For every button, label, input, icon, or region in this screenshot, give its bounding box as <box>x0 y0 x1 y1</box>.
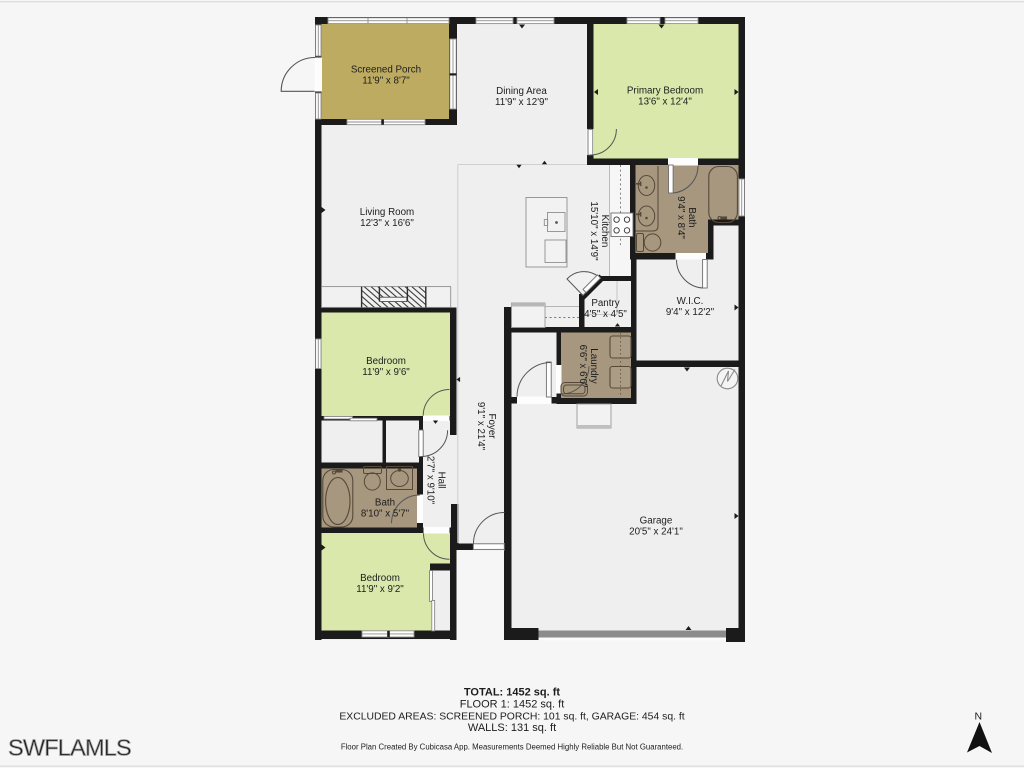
svg-text:Bath: Bath <box>686 207 697 227</box>
svg-text:9'4" x 8'4": 9'4" x 8'4" <box>675 196 686 239</box>
svg-text:8'10" x 5'7": 8'10" x 5'7" <box>361 509 410 520</box>
svg-text:TOTAL: 1452 sq. ft: TOTAL: 1452 sq. ft <box>464 687 561 699</box>
svg-text:W.I.C.: W.I.C. <box>677 296 704 307</box>
svg-text:Hall: Hall <box>436 472 447 489</box>
svg-text:Garage: Garage <box>640 516 673 527</box>
svg-text:Screened Porch: Screened Porch <box>351 65 421 76</box>
svg-text:Living Room: Living Room <box>360 207 414 218</box>
svg-text:20'5" x 24'1": 20'5" x 24'1" <box>629 527 683 538</box>
svg-text:9'1" x 21'4": 9'1" x 21'4" <box>475 402 486 451</box>
svg-text:Pantry: Pantry <box>591 298 619 309</box>
svg-text:11'9" x 9'2": 11'9" x 9'2" <box>356 584 404 595</box>
svg-text:Bedroom: Bedroom <box>366 356 406 367</box>
svg-text:12'3" x 16'6": 12'3" x 16'6" <box>360 218 414 229</box>
svg-text:Bath: Bath <box>375 498 395 509</box>
svg-text:Bedroom: Bedroom <box>360 573 400 584</box>
svg-text:2'7" x 9'10": 2'7" x 9'10" <box>425 456 436 505</box>
svg-text:SWFLAMLS: SWFLAMLS <box>8 734 131 760</box>
svg-text:Primary Bedroom: Primary Bedroom <box>627 86 703 97</box>
svg-text:Foyer: Foyer <box>486 413 497 439</box>
svg-text:13'6" x 12'4": 13'6" x 12'4" <box>638 97 692 108</box>
svg-text:6'6" x 6'0": 6'6" x 6'0" <box>577 345 588 388</box>
svg-text:Kitchen: Kitchen <box>599 215 610 248</box>
svg-text:FLOOR 1: 1452 sq. ft: FLOOR 1: 1452 sq. ft <box>460 699 565 711</box>
svg-text:11'9" x 9'6": 11'9" x 9'6" <box>362 367 410 378</box>
svg-text:11'9" x 8'7": 11'9" x 8'7" <box>362 76 410 87</box>
svg-text:9'4" x 12'2": 9'4" x 12'2" <box>666 307 715 318</box>
svg-text:15'10" x 14'9": 15'10" x 14'9" <box>588 201 599 261</box>
svg-text:11'9" x 12'9": 11'9" x 12'9" <box>495 97 549 108</box>
svg-text:N: N <box>975 711 983 723</box>
svg-text:Floor Plan Created By Cubicasa: Floor Plan Created By Cubicasa App. Meas… <box>341 743 683 752</box>
svg-text:Laundry: Laundry <box>588 348 599 384</box>
svg-text:Dining Area: Dining Area <box>496 86 547 97</box>
svg-text:4'5" x 4'5": 4'5" x 4'5" <box>584 309 627 320</box>
svg-text:WALLS: 131 sq. ft: WALLS: 131 sq. ft <box>468 722 556 734</box>
svg-text:EXCLUDED AREAS: SCREENED PORCH: EXCLUDED AREAS: SCREENED PORCH: 101 sq. … <box>339 712 684 723</box>
